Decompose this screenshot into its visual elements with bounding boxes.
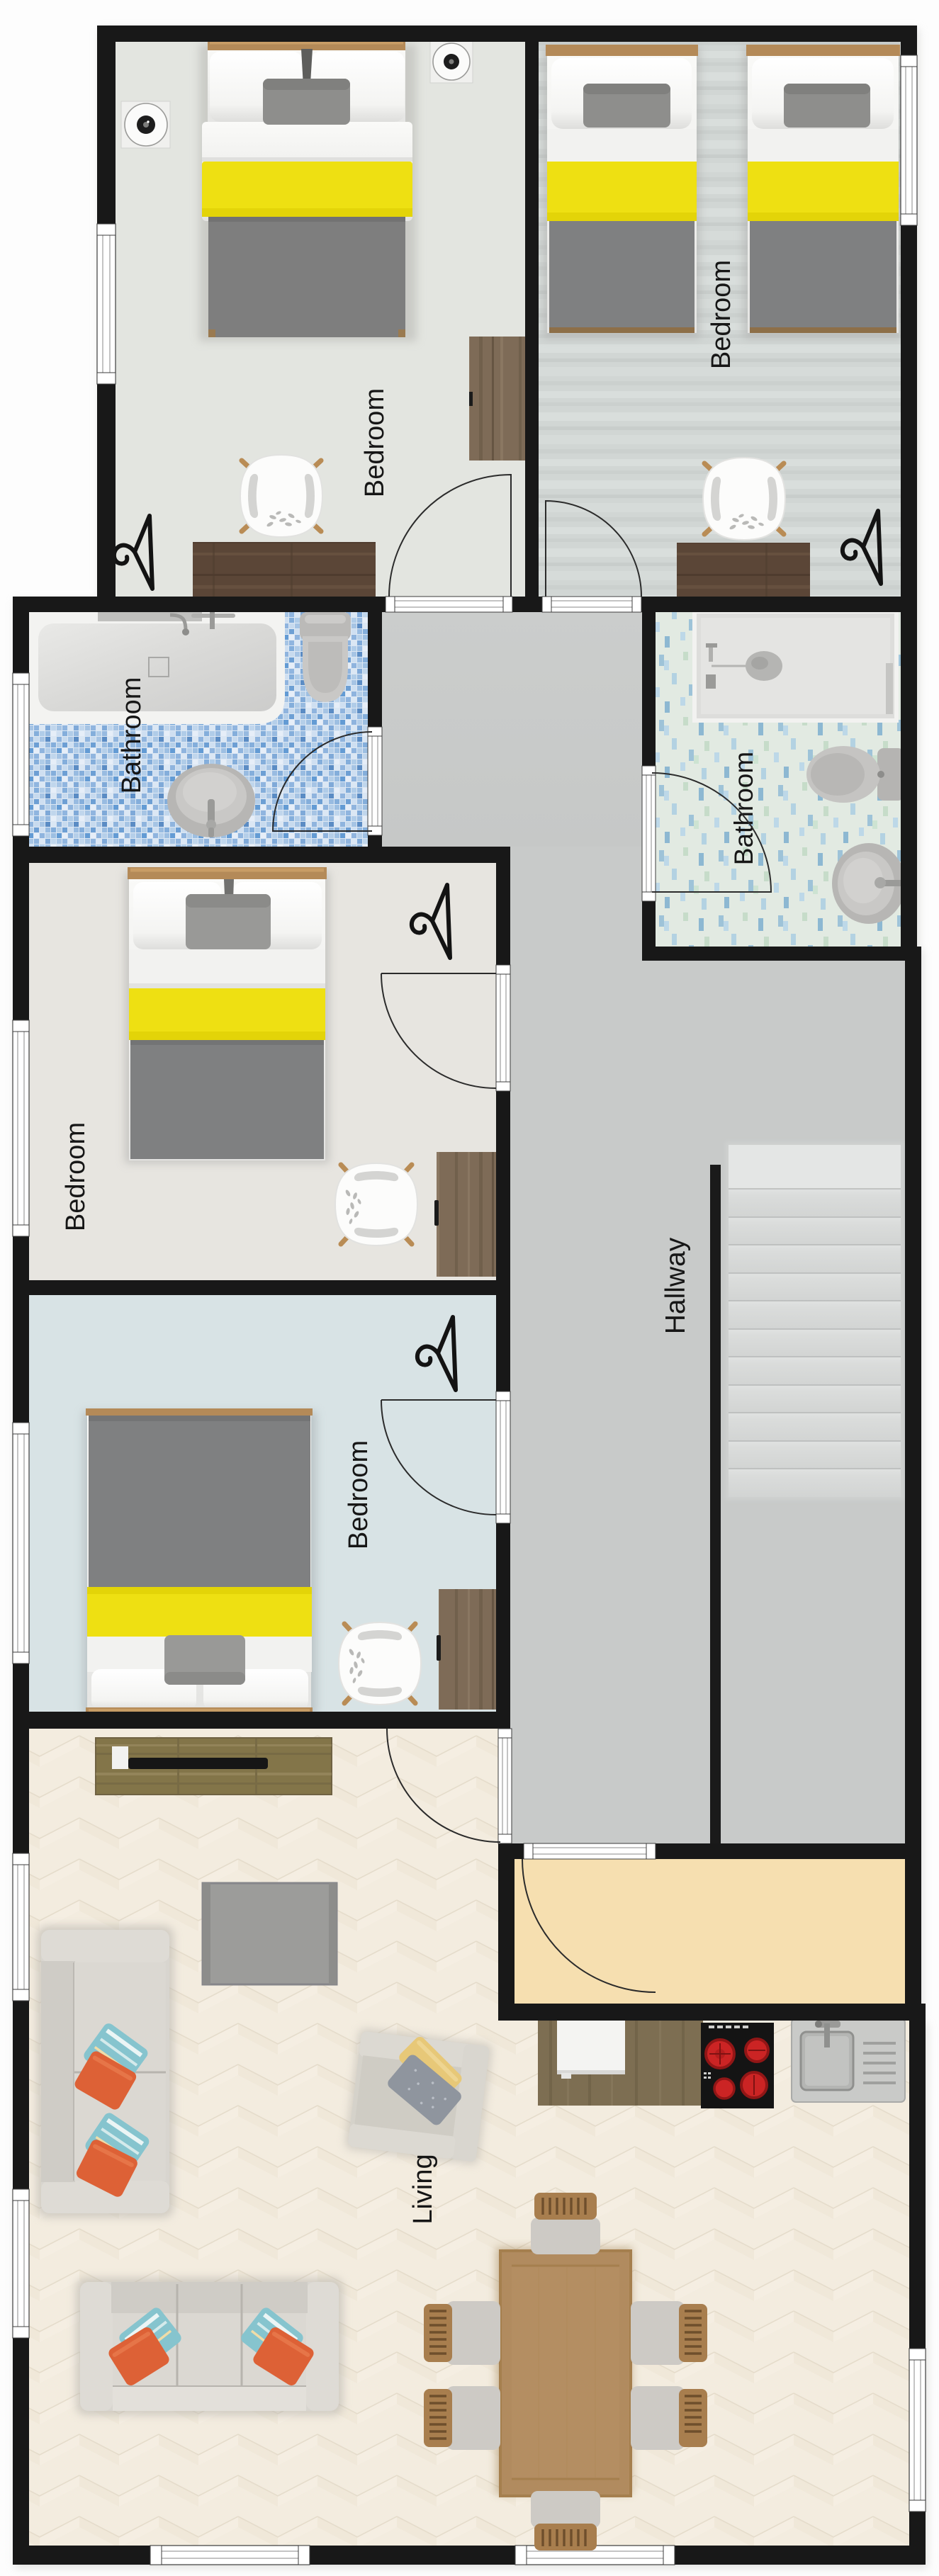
- svg-text:Bedroom: Bedroom: [344, 1440, 373, 1549]
- svg-text:Bedroom: Bedroom: [360, 388, 390, 497]
- svg-text:Hallway: Hallway: [660, 1237, 691, 1334]
- svg-text:Bedroom: Bedroom: [61, 1122, 91, 1231]
- svg-text:Bathroom: Bathroom: [117, 677, 147, 794]
- svg-text:Bedroom: Bedroom: [707, 260, 736, 369]
- svg-text:Living: Living: [408, 2154, 438, 2224]
- svg-text:Bathroom: Bathroom: [729, 752, 758, 865]
